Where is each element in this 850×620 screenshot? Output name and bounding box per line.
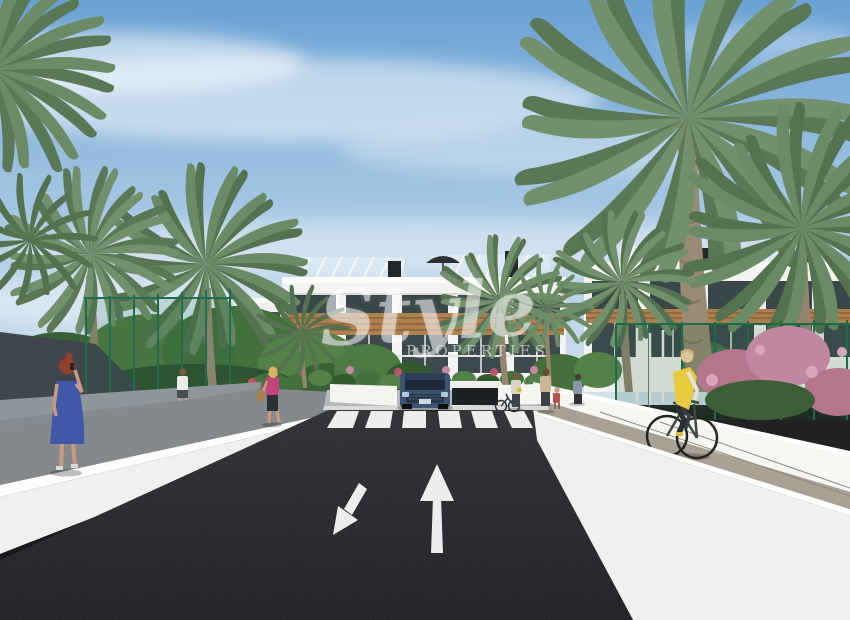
blue-suv <box>397 373 453 412</box>
license-plate <box>419 399 431 404</box>
handbag <box>257 391 265 401</box>
roof-vent <box>388 261 401 277</box>
phone <box>70 363 74 370</box>
garage-entrance <box>452 388 498 405</box>
scene-svg <box>0 0 850 620</box>
child <box>553 393 560 403</box>
yellow-bag <box>517 388 522 393</box>
render-canvas: Style PROPERTIES <box>0 0 850 620</box>
windshield <box>405 380 445 390</box>
